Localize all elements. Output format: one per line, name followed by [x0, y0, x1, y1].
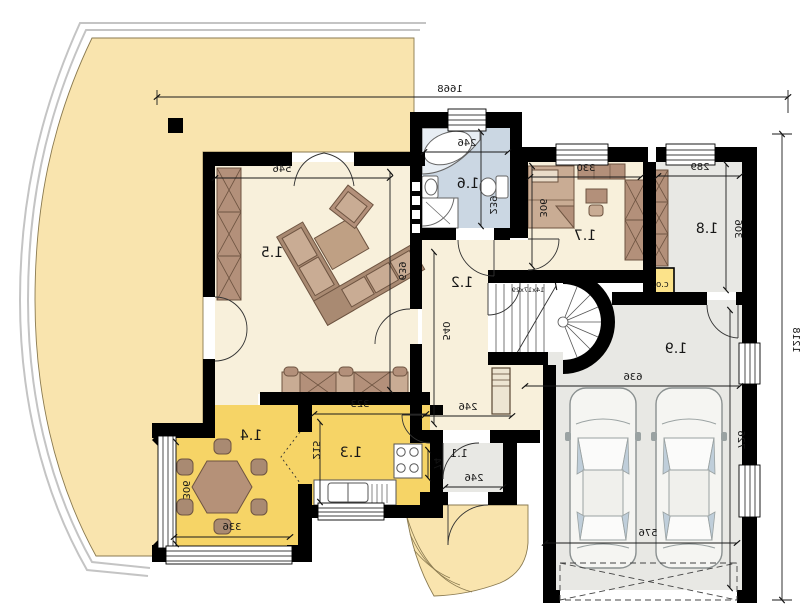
- dim-vestibule-width: 246: [464, 473, 483, 484]
- dim-garage-door: 576: [638, 528, 657, 539]
- room-label-1-8: 1.8: [696, 221, 718, 237]
- room-label-1-2: 1.2: [451, 275, 473, 291]
- dim-hall-width: 246: [458, 402, 477, 413]
- dining-bay-window: [158, 436, 176, 548]
- floor-plan-page: 1668 1218 546 639 246 239 330 306 289 30…: [0, 0, 800, 612]
- dim-hall-depth: 540: [440, 321, 451, 340]
- wardrobe-living: [217, 168, 241, 300]
- dim-overall-width: 1668: [437, 84, 462, 95]
- dim-living-width: 546: [272, 164, 291, 175]
- garage-side-window-2: [739, 465, 760, 517]
- dim-garage-width: 636: [623, 372, 642, 383]
- room-label-1-3: 1.3: [340, 445, 362, 461]
- dim-vestibule-depth: 74: [431, 458, 442, 471]
- dining-bottom-window: [166, 546, 292, 564]
- room-label-1-5: 1.5: [261, 245, 283, 261]
- dim-bath-depth: 239: [487, 195, 498, 214]
- dim-dining-depth: 306: [180, 480, 191, 499]
- kitchen-window: [318, 503, 384, 520]
- bath-window: [448, 109, 486, 131]
- desk: [586, 189, 607, 203]
- dim-kitchen-width: 323: [350, 399, 369, 410]
- toilet-tank: [496, 176, 508, 198]
- bedroom-window: [556, 144, 608, 165]
- shower: [422, 198, 458, 228]
- dim-living-depth: 639: [396, 261, 407, 280]
- desk-chair: [589, 205, 603, 216]
- dim-bath-width: 246: [457, 138, 476, 149]
- dim-store-width: 289: [690, 162, 709, 173]
- floor-plan-canvas: 1668 1218 546 639 246 239 330 306 289 30…: [0, 0, 800, 612]
- room-label-1-1: 1.1: [450, 447, 468, 460]
- dim-garage-depth: 726: [735, 430, 746, 449]
- entrance-porch: [405, 505, 528, 596]
- dim-bedroom-depth: 306: [537, 198, 548, 217]
- dim-store-depth: 306: [732, 219, 743, 238]
- staircase: [488, 283, 601, 360]
- room-label-1-4: 1.4: [240, 428, 262, 444]
- room-label-1-9: 1.9: [665, 341, 687, 357]
- toilet-bowl: [480, 178, 496, 196]
- dim-dining-width: 336: [222, 522, 241, 533]
- hall-radiator: [492, 368, 510, 414]
- stair-note: 14x17x29: [512, 286, 545, 294]
- terrace-column: [168, 118, 183, 133]
- dim-kitchen-depth: 215: [310, 440, 321, 459]
- garage-side-window-1: [739, 343, 760, 384]
- wardrobe-bedroom: [625, 180, 646, 260]
- bed: [528, 166, 574, 228]
- boiler-label: c.o.: [653, 280, 668, 290]
- dim-bedroom-width: 330: [576, 163, 595, 174]
- room-label-1-7: 1.7: [574, 228, 596, 244]
- room-label-1-6: 1.6: [457, 176, 479, 192]
- dim-overall-height: 1218: [790, 327, 800, 352]
